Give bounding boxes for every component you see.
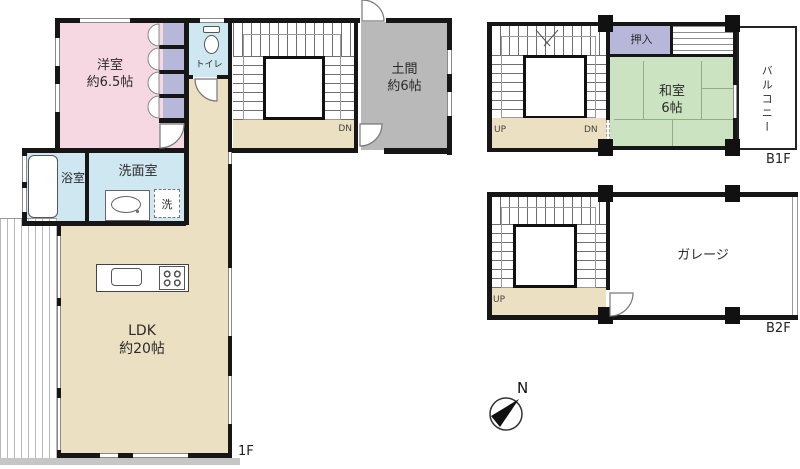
wall <box>487 22 610 26</box>
wall <box>386 18 452 23</box>
wall <box>487 22 492 152</box>
wall <box>188 453 232 458</box>
wall <box>159 94 184 98</box>
pillar <box>598 185 613 202</box>
western-room-label: 洋室 約6.5帖 <box>60 58 160 92</box>
door-arc <box>610 293 633 316</box>
wall <box>57 453 100 458</box>
balcony-label: バルコニー <box>759 45 773 155</box>
floor-label-b2f: B2F <box>766 321 791 336</box>
wall <box>487 315 798 320</box>
toilet-icon <box>203 26 220 33</box>
wall <box>673 54 737 57</box>
wall <box>159 118 184 123</box>
ldk-label: LDK 約20帖 <box>67 322 217 358</box>
washing-machine-box: 洗 <box>154 189 180 218</box>
wall <box>606 192 610 290</box>
compass-icon <box>490 398 522 430</box>
ground-strip <box>0 458 240 465</box>
pillar <box>598 139 613 156</box>
wall <box>224 18 360 23</box>
stair-up-label: UP <box>494 125 506 137</box>
wall <box>487 192 798 197</box>
wall <box>487 148 610 152</box>
wall <box>159 70 184 74</box>
floor-label-b1f: B1F <box>766 152 791 167</box>
stair-dn-label: DN <box>584 125 598 137</box>
wall <box>22 148 186 153</box>
wall <box>55 18 60 38</box>
wall <box>57 225 61 236</box>
kitchen-sink-icon <box>111 268 142 286</box>
wall <box>228 164 232 268</box>
window <box>57 236 61 298</box>
stair-landing-b2f <box>491 288 606 316</box>
wall <box>130 18 200 23</box>
compass-north-label: N <box>517 379 528 399</box>
stove-icon <box>159 266 185 290</box>
wall <box>184 18 189 225</box>
window <box>228 268 232 336</box>
floorplan-canvas: DN <box>0 0 800 469</box>
floor-label-1f: 1F <box>238 444 254 459</box>
washroom-label: 洗面室 <box>92 164 184 181</box>
wall <box>186 75 193 79</box>
stair-dn-label: DN <box>328 124 352 136</box>
wall <box>22 148 27 156</box>
pillar <box>598 307 613 324</box>
wall <box>228 18 232 152</box>
stair-void <box>523 55 587 119</box>
wall <box>610 22 737 26</box>
garage-label: ガレージ <box>630 248 776 265</box>
window <box>80 18 130 23</box>
wall <box>447 116 452 155</box>
wall <box>228 336 232 376</box>
hall-1f <box>188 79 228 225</box>
wall <box>57 298 61 306</box>
window <box>100 453 118 458</box>
window <box>228 376 232 424</box>
wall <box>606 146 737 150</box>
window <box>22 188 27 212</box>
pillar <box>725 307 740 324</box>
wall <box>217 75 228 79</box>
wall <box>228 148 358 153</box>
stair-void <box>263 56 325 120</box>
wall <box>118 453 133 458</box>
toilet-icon <box>204 35 219 54</box>
washitsu-label: 和室 6帖 <box>613 84 731 118</box>
pillar <box>725 15 740 32</box>
window <box>57 306 61 388</box>
pillar <box>598 15 613 32</box>
wall <box>159 45 184 49</box>
wall <box>487 192 492 320</box>
toilet-label: トイレ <box>188 60 230 72</box>
window <box>57 398 61 450</box>
wall <box>22 221 186 226</box>
wall <box>55 112 60 152</box>
bathtub-icon <box>28 155 58 218</box>
garage-opening <box>792 197 798 315</box>
pillar <box>725 139 740 156</box>
window <box>133 453 188 458</box>
door-arc <box>362 0 384 21</box>
window <box>22 156 27 182</box>
window <box>200 18 224 23</box>
wall <box>384 148 452 154</box>
wall <box>610 54 673 57</box>
oshiire-label: 押入 <box>610 33 673 47</box>
wall <box>354 18 358 152</box>
window <box>228 152 232 164</box>
wood-deck <box>0 218 57 459</box>
sink-drain-dot <box>136 210 139 213</box>
laundry-label: 洗 <box>162 196 173 212</box>
doma-label: 土間 約6帖 <box>361 62 448 96</box>
tatami-line <box>614 119 733 120</box>
pillar <box>725 185 740 202</box>
bathroom-label: 浴室 <box>57 171 89 187</box>
stair-up-label: UP <box>493 295 505 307</box>
stair-void <box>513 224 577 288</box>
tatami-line <box>672 120 673 146</box>
wall <box>57 388 61 398</box>
wall <box>447 18 452 50</box>
